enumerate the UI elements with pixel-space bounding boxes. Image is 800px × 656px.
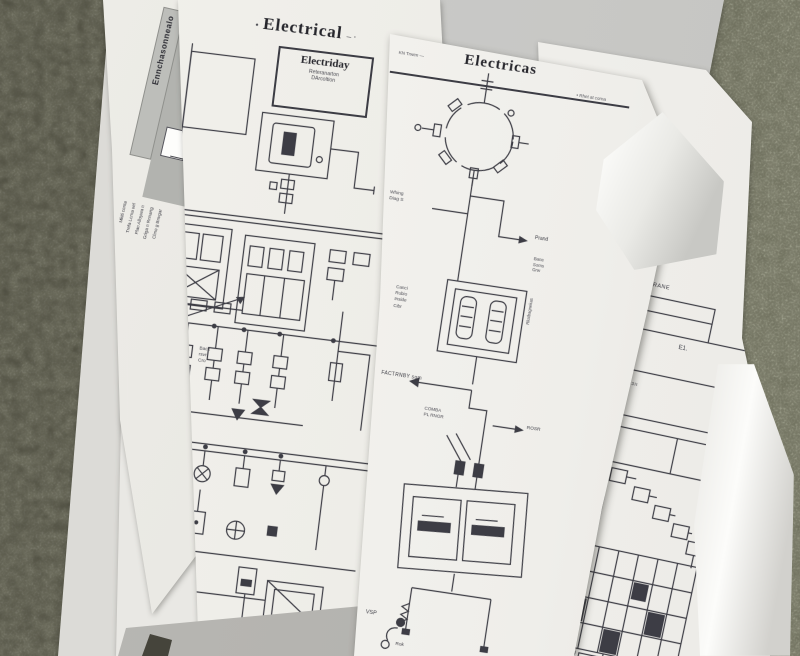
photo-canvas: Ennchasonnealo Mkiti cont xyxy=(0,0,800,656)
page-electricas-content: KN Trwen — Electricas • Rhet at corna xyxy=(287,30,704,656)
battery-box-group xyxy=(398,484,528,577)
page-electricas-shape: KN Trwen — Electricas • Rhet at corna xyxy=(0,0,800,656)
wiring-diag-label: Whing Diag S xyxy=(389,190,405,204)
electricas-schematic xyxy=(287,30,704,656)
page-electricas: KN Trwen — Electricas • Rhet at corna xyxy=(0,0,800,656)
electricas-schematic-lines xyxy=(338,64,594,656)
rok-label: Rok xyxy=(395,642,404,649)
vsp-label: VSP xyxy=(365,609,377,617)
